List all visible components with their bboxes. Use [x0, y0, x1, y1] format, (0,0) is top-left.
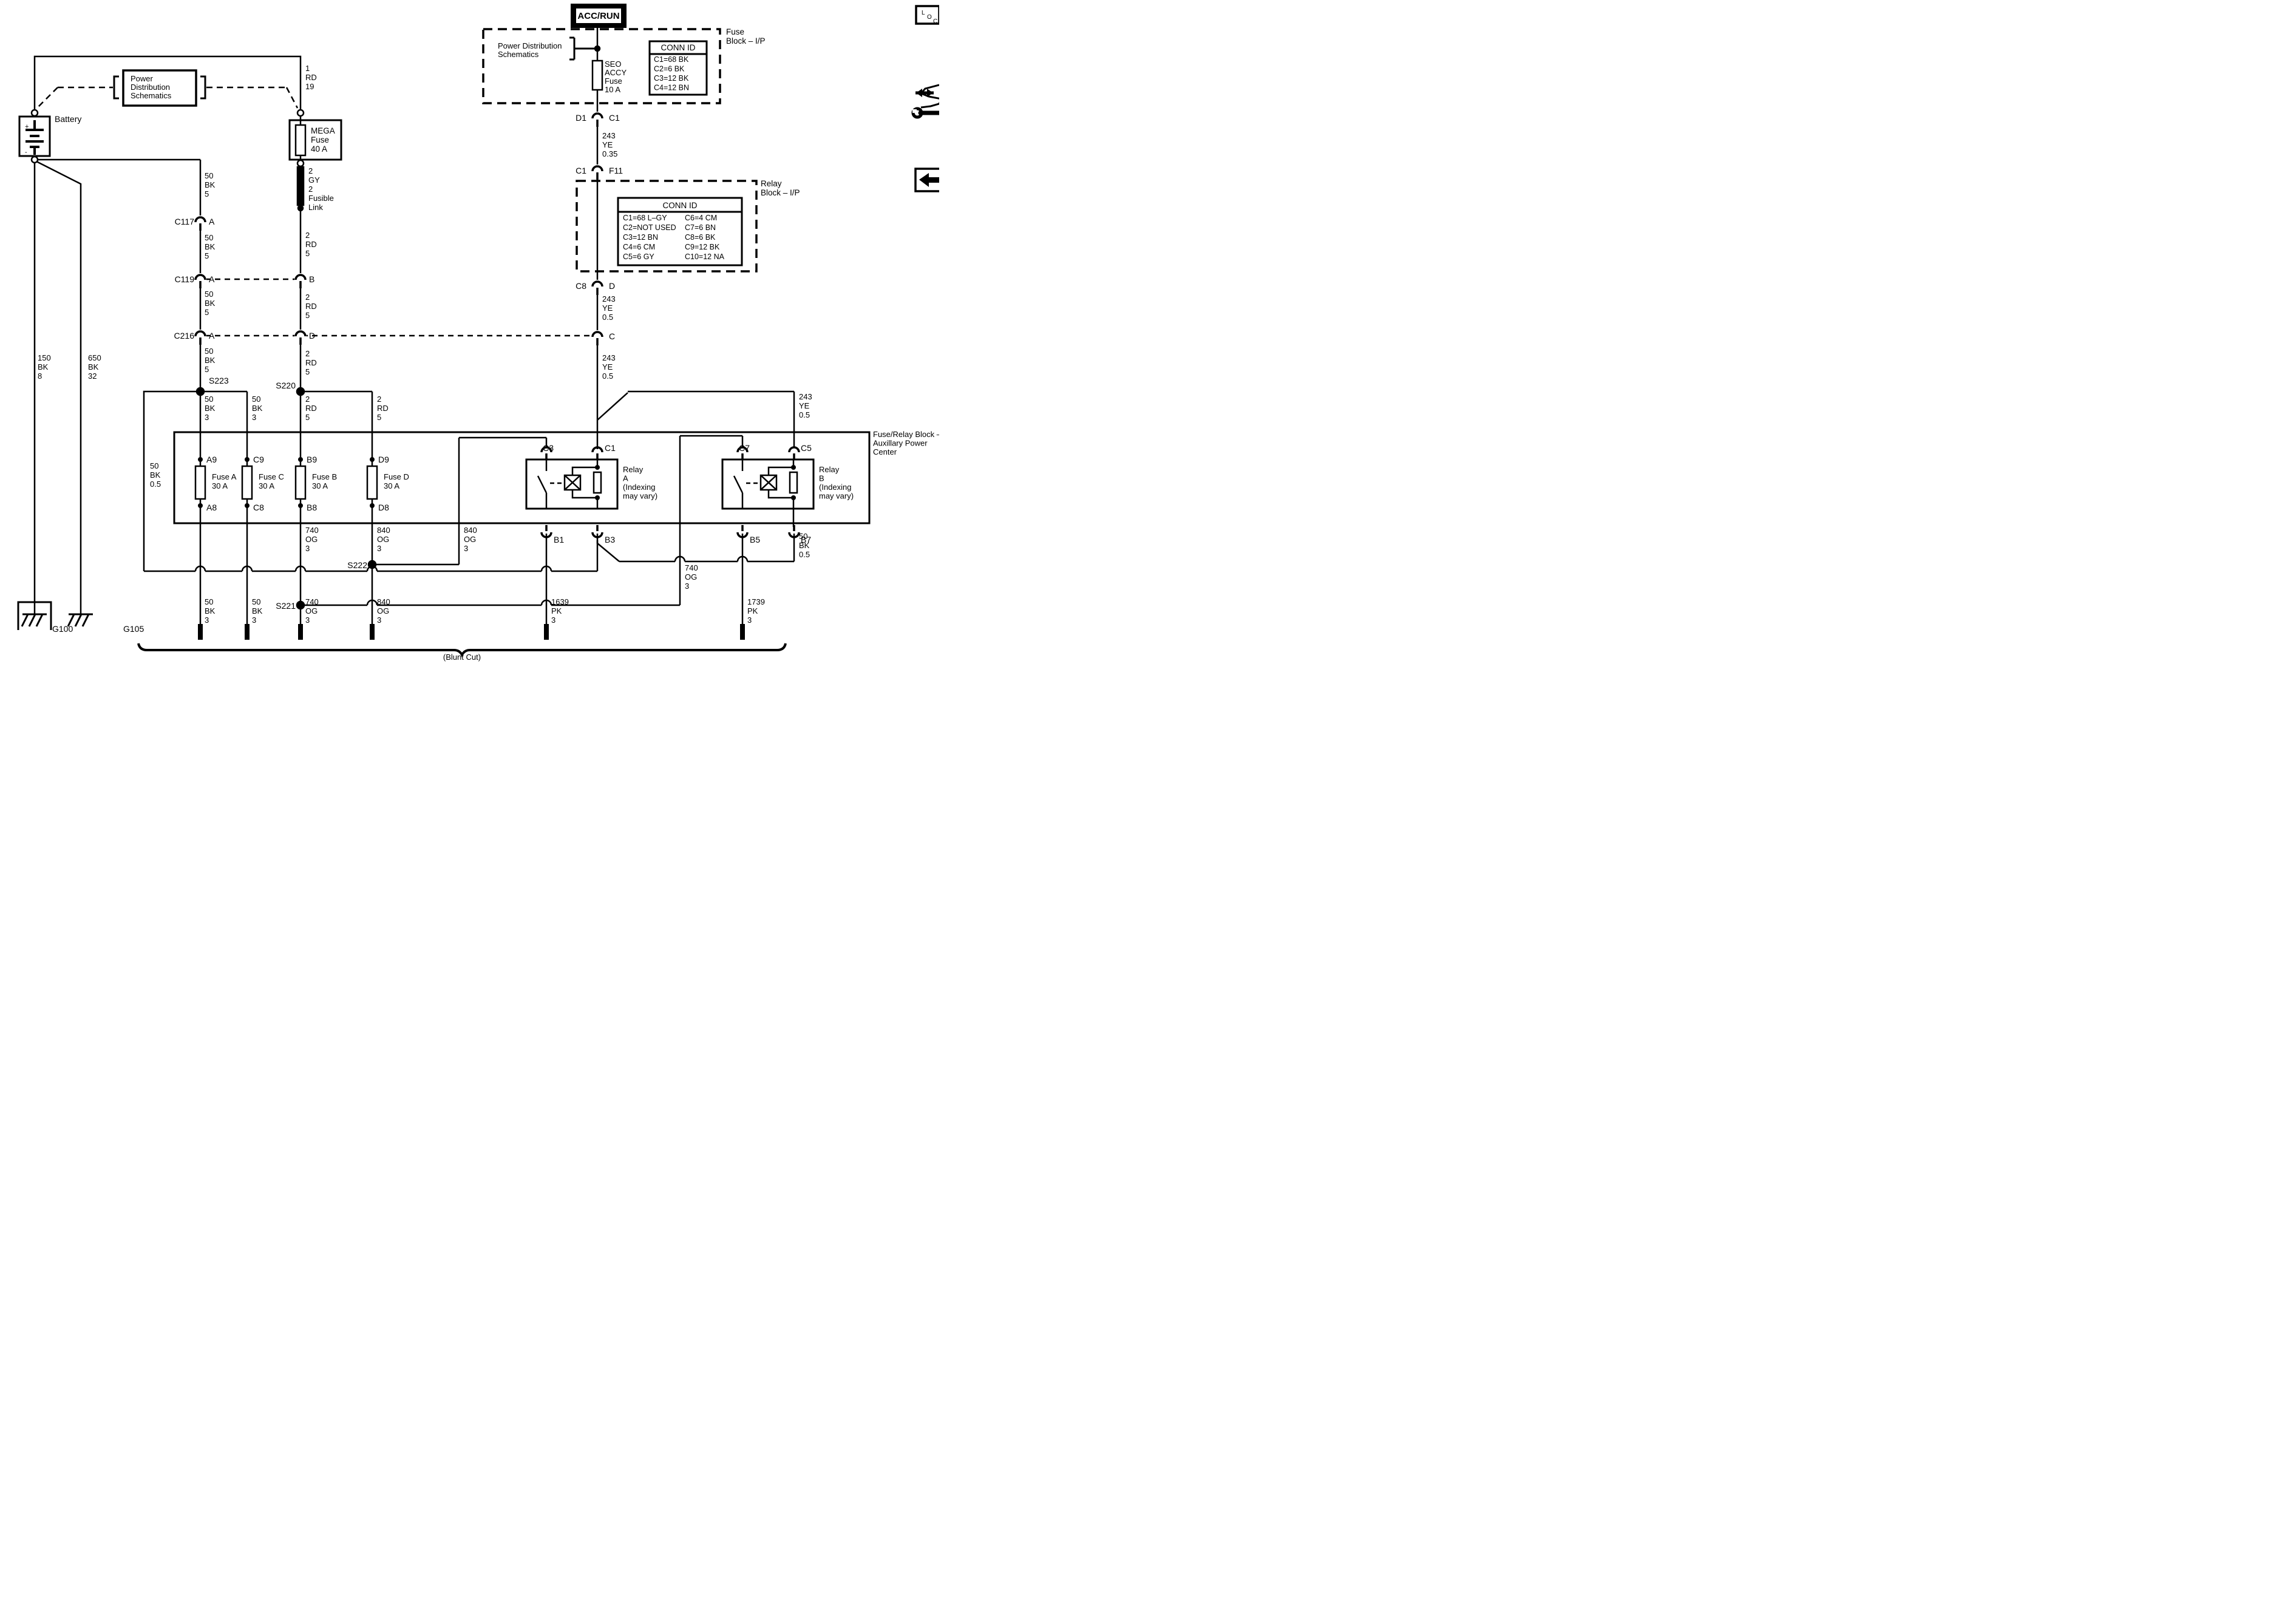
label-line: Block – I/P: [761, 188, 800, 197]
label-wire-2-gy-fusible: 2GY2FusibleLink: [308, 166, 334, 212]
label-line: RD: [305, 302, 317, 311]
label-line: 150: [38, 353, 51, 362]
relay-b-resistor: [790, 472, 797, 493]
label-line: (Blunt Cut): [443, 653, 481, 662]
label-line: C9: [253, 455, 264, 464]
label-line: C5=6 GY: [623, 253, 654, 261]
label-conn-c216: C216: [174, 331, 195, 341]
label-line: Auxillary Power: [873, 439, 928, 448]
pds2-bracket: [569, 38, 595, 59]
label-conn-c1-f11-l: C1: [576, 166, 586, 175]
label-line: D9: [378, 455, 389, 464]
label-line: B3: [605, 535, 615, 544]
label-line: Center: [873, 447, 897, 456]
label-wire-2-rd-5-b: 2RD5: [305, 293, 317, 320]
label-line: Schematics: [498, 50, 539, 59]
label-relay-block-ip-label: RelayBlock – I/P: [761, 179, 800, 197]
label-line: BK: [150, 470, 161, 480]
label-conn-d1: D1: [576, 113, 586, 123]
label-conn-c5: C5: [801, 443, 812, 453]
label-line: B5: [750, 535, 760, 544]
label-line: BK: [252, 606, 263, 615]
label-wire-650-bk-32: 650BK32: [88, 353, 101, 381]
label-line: 32: [88, 371, 97, 381]
label-line: 5: [205, 251, 209, 260]
label-line: C117: [175, 217, 195, 226]
splice-s222-dot: [369, 561, 376, 568]
label-pin-c8: C8: [253, 503, 264, 512]
label-line: GY: [308, 175, 320, 185]
label-line: 8: [38, 371, 42, 381]
label-relay-a-label: RelayA(Indexingmay vary): [623, 465, 657, 501]
label-line: Link: [308, 203, 323, 212]
connector-symbols: [194, 112, 799, 537]
label-line: 740: [305, 526, 319, 535]
wire-243ye-branch: [597, 392, 794, 448]
label-line: YE: [602, 303, 613, 313]
label-line: 650: [88, 353, 101, 362]
label-line: Relay: [819, 465, 840, 474]
label-line: 50: [205, 395, 213, 404]
wire-c3-feed: [459, 438, 546, 448]
inline-connector-dashes: [205, 279, 593, 336]
label-line: D: [609, 281, 615, 291]
label-line: 2: [305, 231, 310, 240]
label-wire-740-og-3-b8: 740OG3: [305, 526, 319, 553]
wire-650-bk: [36, 161, 81, 614]
label-line: C1: [609, 113, 620, 123]
label-splice-s223: S223: [209, 376, 229, 385]
label-line: C1: [605, 443, 616, 453]
label-line: C8: [576, 281, 586, 291]
label-fuse-d-label: Fuse D30 A: [384, 472, 409, 490]
label-seo-accy-label: SEOACCYFuse10 A: [605, 59, 627, 94]
label-wire-2-rd-5-a: 2RD5: [305, 231, 317, 258]
label-line: Power Distribution: [498, 41, 562, 50]
label-splice-s220: S220: [276, 381, 296, 390]
label-line: 30 A: [312, 481, 328, 490]
label-line: BK: [205, 180, 216, 189]
label-line: Fuse: [311, 135, 329, 144]
label-conn-c216-a: A: [209, 331, 215, 341]
label-line: B9: [307, 455, 317, 464]
label-line: 5: [205, 308, 209, 317]
label-line: C6=4 CM: [685, 214, 717, 222]
label-conn-b1: B1: [554, 535, 564, 544]
label-line: 3: [377, 544, 381, 553]
label-line: 0.5: [150, 480, 161, 489]
label-line: C: [609, 331, 615, 341]
label-conn-c117-a: A: [209, 217, 215, 226]
label-wire-243-ye-05-b: 243YE0.5: [602, 353, 616, 381]
label-line: 3: [747, 615, 752, 625]
label-line: 50: [205, 347, 213, 356]
label-line: 0.5: [799, 410, 810, 419]
label-line: Fuse: [726, 27, 744, 36]
page-icons: [912, 6, 939, 191]
label-line: 2: [308, 166, 313, 175]
label-line: Fuse D: [384, 472, 409, 481]
label-pin-d9: D9: [378, 455, 389, 464]
wire-c7-feed: [680, 436, 742, 448]
label-line: +: [25, 123, 29, 131]
label-line: 3: [464, 544, 468, 553]
label-line: C3=12 BK: [654, 74, 689, 83]
label-wire-1739-pk-3: 1739PK3: [747, 597, 765, 625]
label-wire-840-og-3-bot: 840OG3: [377, 597, 390, 625]
label-line: C4=12 BN: [654, 84, 689, 92]
label-line: 19: [305, 82, 314, 91]
pds-bracket-right: [200, 76, 205, 98]
label-line: (Indexing: [819, 483, 851, 492]
label-line: C3=12 BN: [623, 233, 658, 242]
label-line: 30 A: [384, 481, 399, 490]
label-line: G105: [123, 624, 144, 634]
label-line: Fusible: [308, 194, 334, 203]
label-conn-b3: B3: [605, 535, 615, 544]
label-wire-50-bk-3-bot1: 50BK3: [205, 597, 216, 625]
label-loc-letter-o: O: [927, 14, 932, 21]
label-battery-plus: +: [25, 123, 29, 131]
label-line: C2=6 BK: [654, 65, 685, 73]
label-line: 5: [305, 367, 310, 376]
label-wire-50-bk-5-d: 50BK5: [205, 347, 216, 374]
label-line: 1739: [747, 597, 765, 606]
label-line: G100: [52, 624, 73, 634]
label-wire-243-ye-05-c: 243YE0.5: [799, 392, 812, 419]
connector-gaps: [194, 112, 603, 339]
label-line: PK: [747, 606, 758, 615]
label-line: YE: [602, 362, 613, 371]
label-line: D: [309, 331, 315, 341]
label-wire-50-bk-3-bot2: 50BK3: [252, 597, 263, 625]
battery-positive-terminal: [32, 110, 38, 116]
label-fuse-a-label: Fuse A30 A: [212, 472, 237, 490]
label-line: 740: [305, 597, 319, 606]
label-line: MEGA: [311, 126, 335, 135]
label-line: Fuse B: [312, 472, 337, 481]
label-connid1-title: CONN ID: [661, 43, 696, 52]
label-line: OG: [377, 535, 389, 544]
label-line: S222: [347, 560, 367, 570]
blunt-cut-terminals: [198, 624, 745, 640]
label-line: RD: [305, 358, 317, 367]
label-line: A8: [206, 503, 217, 512]
label-line: C10=12 NA: [685, 253, 725, 261]
relay-a: [526, 459, 617, 509]
label-line: BK: [205, 299, 216, 308]
label-wire-243-ye-05-a: 243YE0.5: [602, 294, 616, 322]
fuse-a-symbol: [195, 466, 205, 499]
label-line: 0.5: [602, 313, 613, 322]
label-line: C7: [739, 443, 750, 453]
fusible-link-top-terminal: [297, 160, 304, 166]
label-battery-label: Battery: [55, 114, 81, 124]
label-line: -: [25, 149, 27, 156]
label-line: 2: [305, 293, 310, 302]
label-line: C3: [543, 443, 554, 453]
label-wire-50-bk-3-b: 50BK3: [252, 395, 263, 422]
fuse-c-symbol: [242, 466, 252, 499]
label-connid2-title: CONN ID: [663, 201, 698, 210]
label-line: 840: [377, 526, 390, 535]
label-line: C9=12 BK: [685, 243, 720, 251]
label-line: B8: [307, 503, 317, 512]
label-line: 50: [205, 597, 213, 606]
label-line: RD: [305, 404, 317, 413]
label-line: BK: [38, 362, 49, 371]
label-battery-minus: -: [25, 149, 27, 156]
splice-s220-dot: [297, 388, 304, 395]
label-line: 5: [205, 189, 209, 198]
label-line: 5: [305, 249, 310, 258]
label-wire-150-bk-8: 150BK8: [38, 353, 51, 381]
label-conn-c8: C8: [576, 281, 586, 291]
wiring-diagram-page: Battery+-PowerDistributionSchematics1RD1…: [0, 0, 939, 662]
fuse-d-symbol: [367, 466, 377, 499]
label-ground-g100: G100: [52, 624, 73, 634]
label-line: Relay: [761, 179, 782, 188]
label-line: 50: [205, 171, 213, 180]
label-pin-c9: C9: [253, 455, 264, 464]
label-line: C2=NOT USED: [623, 223, 676, 232]
label-wire-740-og-3-up: 740OG3: [685, 563, 698, 591]
label-line: CONN ID: [663, 201, 698, 210]
g100-ground-icon: [22, 614, 47, 626]
label-blunt-cut-label: (Blunt Cut): [443, 653, 481, 662]
label-line: 5: [205, 365, 209, 374]
label-line: F11: [609, 166, 623, 175]
label-line: 0.5: [799, 550, 810, 559]
label-wire-50-bk-5-b: 50BK5: [205, 233, 216, 260]
label-line: RD: [305, 73, 317, 82]
label-conn-c1-relay: C1: [605, 443, 616, 453]
label-line: C1=68 BK: [654, 55, 689, 64]
label-line: O: [927, 14, 932, 21]
label-line: OG: [305, 535, 318, 544]
label-line: 0.5: [602, 371, 613, 381]
junction-dot-pds: [595, 46, 600, 51]
label-line: Fuse/Relay Block –: [873, 430, 939, 439]
label-pin-a9: A9: [206, 455, 217, 464]
label-conn-c119-b: B: [309, 274, 314, 284]
label-line: S220: [276, 381, 296, 390]
label-line: Schematics: [131, 91, 172, 100]
label-line: 3: [205, 413, 209, 422]
label-line: 2: [305, 395, 310, 404]
label-line: 1: [305, 64, 310, 73]
label-wire-740-og-3-bot: 740OG3: [305, 597, 319, 625]
label-line: SEO: [605, 59, 621, 69]
label-line: B: [309, 274, 314, 284]
label-conn-c: C: [609, 331, 615, 341]
label-line: 5: [305, 413, 310, 422]
label-wire-840-og-3-d8: 840OG3: [377, 526, 390, 553]
label-line: 243: [602, 294, 616, 303]
label-line: 50: [150, 461, 158, 470]
mega-fuse-symbol: [296, 125, 305, 155]
label-line: 10 A: [605, 85, 620, 94]
label-line: BK: [88, 362, 99, 371]
label-line: 50: [205, 233, 213, 242]
label-conn-d: D: [609, 281, 615, 291]
label-line: C1: [576, 166, 586, 175]
label-line: Block – I/P: [726, 36, 766, 46]
label-line: 50: [205, 290, 213, 299]
label-line: B1: [554, 535, 564, 544]
fusible-link-symbol: [297, 167, 304, 205]
label-conn-c7: C7: [739, 443, 750, 453]
label-line: 30 A: [259, 481, 274, 490]
label-line: 40 A: [311, 144, 327, 154]
label-conn-c119: C119: [175, 274, 195, 284]
label-line: 3: [252, 413, 256, 422]
label-line: BK: [205, 404, 216, 413]
label-line: D8: [378, 503, 389, 512]
label-pin-b9: B9: [307, 455, 317, 464]
label-line: C119: [175, 274, 195, 284]
label-line: 0.35: [602, 149, 617, 158]
label-line: S221: [276, 601, 296, 611]
label-line: 50: [252, 395, 260, 404]
fuse-b-symbol: [296, 466, 305, 499]
label-line: BK: [205, 242, 216, 251]
label-line: BK: [205, 356, 216, 365]
label-conn-c117: C117: [175, 217, 195, 226]
label-relay-b-label: RelayB(Indexingmay vary): [819, 465, 854, 501]
megafuse-top-terminal: [297, 110, 304, 116]
label-line: Battery: [55, 114, 81, 124]
label-line: 2: [305, 349, 310, 358]
label-wire-50-bk-5-a: 50BK5: [205, 171, 216, 198]
label-line: 5: [305, 311, 310, 320]
label-line: Fuse C: [259, 472, 284, 481]
label-line: YE: [799, 401, 810, 410]
label-pds2-label: Power DistributionSchematics: [498, 41, 562, 59]
label-line: S223: [209, 376, 229, 385]
label-line: C: [933, 18, 937, 25]
label-line: C5: [801, 443, 812, 453]
label-line: C4=6 CM: [623, 243, 655, 251]
label-line: 243: [602, 353, 616, 362]
label-line: 3: [685, 581, 689, 591]
label-conn-b5: B5: [750, 535, 760, 544]
label-line: 840: [464, 526, 477, 535]
label-line: OG: [464, 535, 476, 544]
label-loc-letter-l: L: [922, 10, 925, 16]
label-line: 50: [799, 532, 807, 541]
label-ground-g105: G105: [123, 624, 144, 634]
label-line: B: [819, 474, 824, 483]
label-wire-50-bk-3-a: 50BK3: [205, 395, 216, 422]
label-line: 3: [205, 615, 209, 625]
label-wire-50-bk-5-c: 50BK5: [205, 290, 216, 317]
label-line: 840: [377, 597, 390, 606]
relay-b: [722, 459, 813, 527]
label-line: C216: [174, 331, 195, 341]
label-line: 50: [252, 597, 260, 606]
label-line: L: [922, 10, 925, 16]
label-wire-2-rd-5-s220a: 2RD5: [305, 395, 317, 422]
label-fuse-block-ip-label: FuseBlock – I/P: [726, 27, 766, 46]
label-line: A: [209, 217, 215, 226]
tools-icon[interactable]: [912, 85, 939, 117]
label-wire-243-ye-035: 243YE0.35: [602, 131, 617, 158]
label-wire-840-og-3-s222: 840OG3: [464, 526, 477, 553]
label-wire-1-rd-19: 1RD19: [305, 64, 317, 91]
label-line: 2: [377, 395, 381, 404]
label-line: 5: [377, 413, 381, 422]
label-line: YE: [602, 140, 613, 149]
label-line: D1: [576, 113, 586, 123]
back-arrow-icon[interactable]: [915, 169, 939, 191]
label-line: A9: [206, 455, 217, 464]
label-line: ACC/RUN: [577, 11, 619, 21]
label-accrun-label: ACC/RUN: [577, 11, 619, 21]
label-line: 243: [799, 392, 812, 401]
label-pin-a8: A8: [206, 503, 217, 512]
wiring-layer: [19, 27, 794, 624]
label-line: A: [209, 331, 215, 341]
wrench-notch: [912, 109, 917, 113]
splice-s221-dot: [297, 602, 304, 609]
label-line: 3: [551, 615, 555, 625]
splice-s223-dot: [197, 388, 204, 395]
label-wire-1639-pk-3: 1639PK3: [551, 597, 569, 625]
label-line: 30 A: [212, 481, 228, 490]
label-aux-block-label: Fuse/Relay Block –Auxillary PowerCenter: [873, 430, 939, 456]
pointer-outline-icon: [921, 85, 939, 107]
label-line: 2: [308, 185, 313, 194]
label-conn-c119-a: A: [209, 274, 215, 284]
seo-accy-fuse-symbol: [593, 61, 602, 90]
label-wire-50-bk-05-loop: 50BK0.5: [150, 461, 161, 489]
label-line: Distribution: [131, 83, 170, 92]
schematic-canvas: Battery+-PowerDistributionSchematics1RD1…: [0, 0, 939, 662]
label-line: PK: [551, 606, 562, 615]
label-line: 740: [685, 563, 698, 572]
label-line: C8=6 BK: [685, 233, 716, 242]
label-wire-2-rd-5-c: 2RD5: [305, 349, 317, 376]
label-line: 3: [305, 615, 310, 625]
label-conn-c216-d: D: [309, 331, 315, 341]
label-conn-c1-f11-r: F11: [609, 166, 623, 175]
label-line: OG: [685, 572, 697, 581]
label-line: 1639: [551, 597, 569, 606]
label-line: C1=68 L–GY: [623, 214, 667, 222]
label-line: may vary): [623, 492, 657, 501]
label-line: A: [209, 274, 215, 284]
label-line: Fuse: [605, 76, 622, 86]
label-splice-s221: S221: [276, 601, 296, 611]
label-conn-c1-top: C1: [609, 113, 620, 123]
label-line: 3: [377, 615, 381, 625]
label-fuse-b-label: Fuse B30 A: [312, 472, 337, 490]
label-conn-c3: C3: [543, 443, 554, 453]
label-wire-2-rd-5-s220b: 2RD5: [377, 395, 389, 422]
label-fuse-c-label: Fuse C30 A: [259, 472, 284, 490]
pds-bracket-left: [114, 76, 119, 98]
label-line: Relay: [623, 465, 644, 474]
label-line: 243: [602, 131, 616, 140]
label-line: Fuse A: [212, 472, 237, 481]
label-line: 3: [305, 544, 310, 553]
label-line: CONN ID: [661, 43, 696, 52]
label-line: 3: [252, 615, 256, 625]
label-pin-d8: D8: [378, 503, 389, 512]
label-line: C7=6 BN: [685, 223, 716, 232]
label-line: OG: [305, 606, 318, 615]
